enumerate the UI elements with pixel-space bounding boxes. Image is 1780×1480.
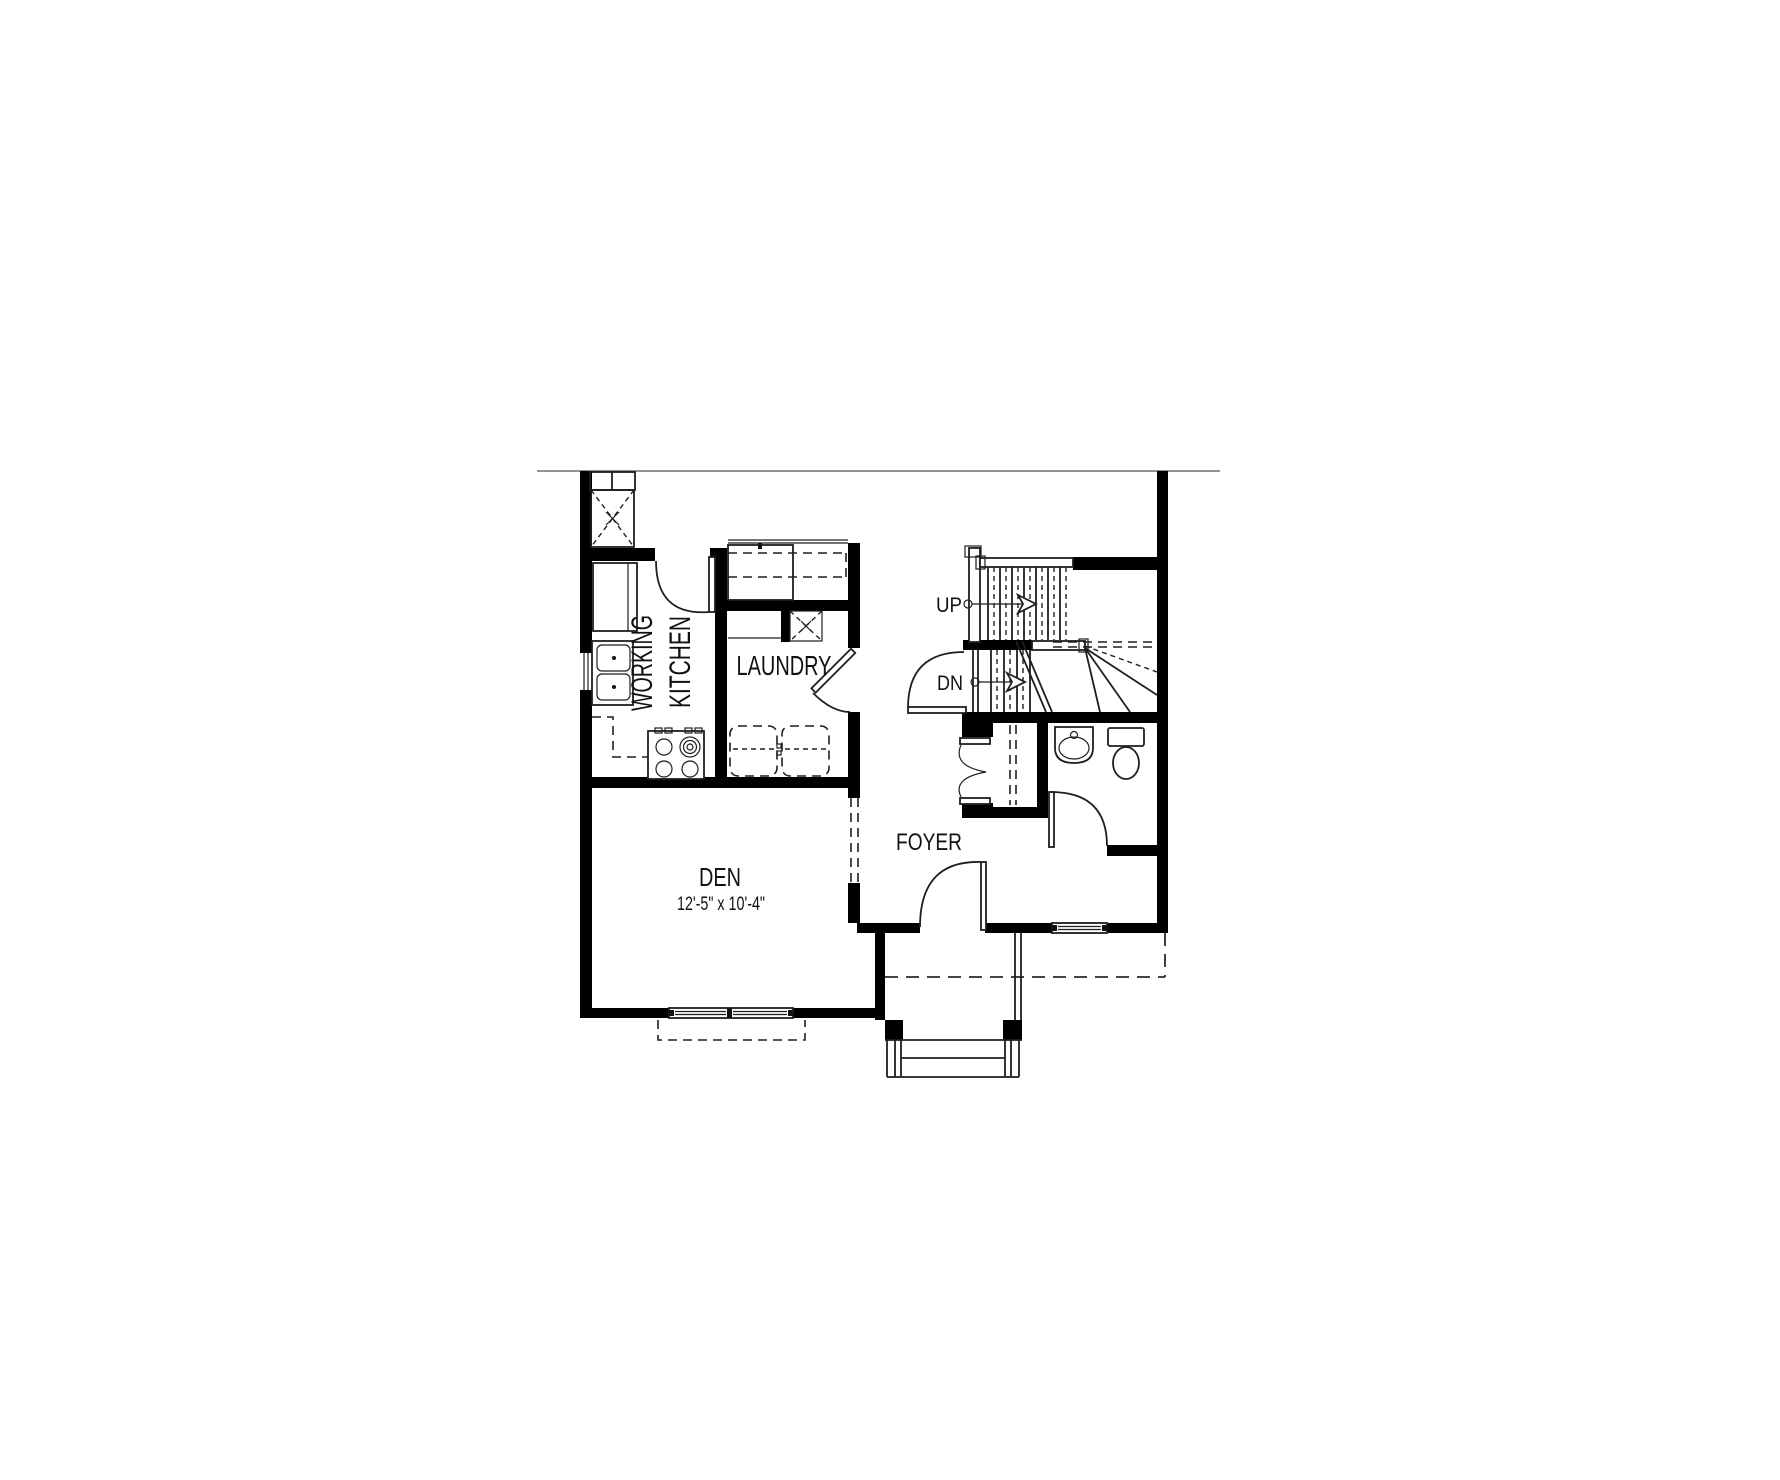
- den-dimensions: 12'-5" x 10'-4": [677, 894, 765, 915]
- laundry-label: LAUNDRY: [737, 650, 832, 681]
- porch-post-right: [1003, 1020, 1022, 1040]
- den-bottom-wall-right: [793, 1008, 885, 1018]
- laundry-tub-counter: [728, 540, 848, 600]
- kitchen-counter-dashed: [592, 717, 648, 757]
- stair-break-line: [1016, 641, 1046, 712]
- floor-plan-page: WORKING KITCHEN LAUNDRY UP DN FOYER DEN …: [0, 0, 1780, 1480]
- porch-steps: [885, 1040, 1022, 1077]
- chimney: [590, 472, 635, 547]
- porch: [885, 933, 1165, 1077]
- up-label: UP: [936, 594, 962, 617]
- stair-top-wall: [1073, 557, 1157, 570]
- kitchen-door: [656, 557, 715, 612]
- right-wall: [1157, 471, 1168, 933]
- stair-top-rail: [980, 558, 1073, 567]
- foyer-front-wall-mid: [985, 923, 1052, 933]
- kitchen-label-line2: KITCHEN: [664, 616, 697, 708]
- bathroom-door: [1049, 792, 1107, 847]
- stove: [648, 728, 704, 779]
- bathroom-sink: [1055, 727, 1093, 763]
- closet-bottom-wall: [993, 807, 1040, 818]
- front-window: [1052, 923, 1107, 933]
- closet-stub-bottom: [962, 803, 993, 818]
- foyer-label: FOYER: [896, 829, 962, 856]
- stair-left-rail: [969, 548, 980, 642]
- kitchen-label-line1: WORKING: [626, 615, 659, 711]
- toilet: [1108, 728, 1144, 779]
- cased-opening: [851, 798, 858, 883]
- kitchen-top-wall: [580, 548, 655, 561]
- window-well-dashed: [658, 1020, 805, 1040]
- foyer-front-wall-left: [857, 923, 920, 933]
- laundry-right-wall-lower: [848, 712, 860, 798]
- bath-bottom-wall: [1107, 845, 1163, 856]
- washer-dryer: [730, 726, 829, 776]
- dn-label: DN: [937, 672, 963, 695]
- den-window: [669, 1008, 793, 1018]
- kitchen-den-wall: [580, 777, 860, 788]
- laundry-nook-wall: [727, 600, 850, 611]
- laundry-right-wall-upper: [848, 543, 860, 648]
- den-se-wall: [875, 923, 885, 1020]
- porch-post-left: [885, 1020, 903, 1040]
- left-wall-lower: [580, 695, 592, 1018]
- front-door: [920, 862, 986, 930]
- furnace-stub-wall: [781, 611, 790, 642]
- closet-stub-top: [962, 723, 993, 737]
- den-bottom-wall-left: [580, 1008, 669, 1018]
- winder-treads: [1053, 642, 1157, 712]
- kitchen-window: [580, 648, 592, 695]
- floor-plan-drawing: WORKING KITCHEN LAUNDRY UP DN FOYER DEN …: [0, 0, 1780, 1480]
- closet-bath-divider: [1037, 723, 1048, 818]
- stairs-up: [965, 546, 1073, 642]
- closet-double-doors: [959, 738, 990, 804]
- furnace: [728, 611, 822, 641]
- den-label: DEN: [699, 862, 741, 892]
- foyer-front-wall-right: [1107, 923, 1163, 933]
- den-right-wall-lower: [848, 883, 860, 923]
- stair-bottom-wall: [962, 712, 1163, 723]
- kitchen-laundry-divider: [715, 548, 727, 788]
